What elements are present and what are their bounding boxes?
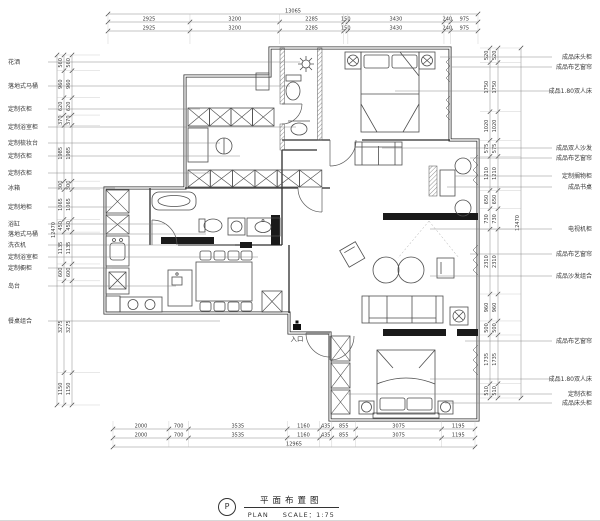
- hatched-walls: [280, 48, 437, 196]
- entry-stamp: [293, 321, 301, 331]
- drawing-title-en-word: PLAN: [248, 511, 269, 519]
- cabinet-cross: [188, 108, 210, 126]
- dim-value: 2925: [143, 16, 156, 22]
- cloakroom: [188, 73, 269, 162]
- dim-value: 1210: [492, 167, 498, 180]
- dim-value: 620: [66, 102, 72, 112]
- cabinet-cross: [300, 170, 322, 187]
- cabinet-cross: [253, 108, 275, 126]
- dim-value: 2285: [305, 16, 318, 22]
- dim-value: 3535: [231, 423, 244, 429]
- fixture-label-right: 成品书桌: [568, 183, 592, 191]
- fixture-label-right: 成品布艺窗帘: [556, 63, 592, 71]
- dim-value: 1750: [492, 81, 498, 94]
- dim-value: 1985: [66, 147, 72, 160]
- dim-value: 975: [460, 16, 470, 22]
- fixture-label-left: 洗衣机: [8, 241, 26, 249]
- dim-value: 500: [492, 323, 498, 333]
- kitchen-island: [168, 270, 192, 306]
- dim-value: 575: [492, 144, 498, 154]
- dim-value: 3275: [58, 320, 64, 333]
- dim-value: 3075: [392, 432, 405, 438]
- dim-value: 3430: [390, 16, 403, 22]
- dim-value: 520: [484, 51, 490, 61]
- dim-value: 1020: [492, 120, 498, 133]
- dim-value: 650: [484, 195, 490, 205]
- dim-value: 2310: [492, 255, 498, 268]
- interior-walls: [150, 140, 450, 313]
- wardrobe-cabinets: [106, 108, 350, 414]
- dim-value: 730: [492, 214, 498, 224]
- dim-value: 520: [492, 51, 498, 61]
- dim-total: 13065: [285, 8, 301, 14]
- fixture-label-right: 成品1.80双人床: [549, 375, 592, 383]
- dim-value: 1135: [58, 242, 64, 255]
- dim-value: 435: [321, 432, 331, 438]
- fixture-label-right: 成品双人沙发: [556, 144, 592, 152]
- dim-value: 600: [58, 268, 64, 278]
- fixture-label-right: 成品布艺窗帘: [556, 154, 592, 162]
- living-room: [340, 155, 478, 375]
- dim-value: 700: [174, 423, 184, 429]
- drawing-symbol: P: [218, 498, 236, 516]
- dim-value: 150: [341, 16, 351, 22]
- cabinet-cross: [331, 336, 350, 361]
- fixture-label-left: 冰箱: [8, 184, 20, 192]
- dim-value: 300: [58, 181, 64, 191]
- dim-value: 1210: [484, 167, 490, 180]
- fixture-label-left: 定制衣柜: [8, 169, 32, 177]
- dim-value: 370: [66, 115, 72, 125]
- dining-set: [196, 251, 252, 311]
- furniture: [106, 52, 478, 418]
- master-bedroom: [345, 52, 450, 132]
- dim-value: 960: [484, 303, 490, 313]
- fixture-annotations: 花洒落地式马桶定制衣柜定制浴室柜定制梳妆台定制衣柜定制衣柜冰箱定制地柜浴缸落地式…: [8, 53, 592, 407]
- dim-value: 730: [484, 214, 490, 224]
- fixture-label-right: 成品布艺窗帘: [556, 250, 592, 258]
- dim-value: 3535: [231, 432, 244, 438]
- fixture-label-right: 成品床头柜: [562, 53, 592, 61]
- dim-value: 450: [58, 221, 64, 231]
- dim-value: 1160: [297, 432, 310, 438]
- drawing-title-cn: 平面布置图: [244, 494, 339, 508]
- dim-value: 560: [58, 58, 64, 68]
- dim-value: 975: [460, 25, 470, 31]
- cabinet-cross: [331, 390, 350, 414]
- dim-value: 2925: [143, 25, 156, 31]
- dim-value: 575: [484, 144, 490, 154]
- fixture-label-left: 定制浴室柜: [8, 253, 38, 261]
- cabinet-cross: [331, 363, 350, 388]
- fixture-label-left: 落地式马桶: [8, 82, 38, 90]
- fixture-label-left: 定制地柜: [8, 203, 32, 211]
- dim-total: 12965: [286, 441, 302, 447]
- fixture-label-right: 成品1.80双人床: [549, 87, 592, 95]
- kitchen: [106, 236, 192, 312]
- dim-value: 435: [321, 423, 331, 429]
- dim-value: 960: [66, 79, 72, 89]
- dim-value: 1195: [452, 423, 465, 429]
- dim-value: 1735: [484, 353, 490, 366]
- cabinet-cross: [210, 170, 232, 187]
- fixture-label-left: 定制橱柜: [8, 264, 32, 272]
- dim-value: 1750: [484, 81, 490, 94]
- door-swings: [152, 104, 356, 360]
- dim-total: 12470: [515, 215, 521, 231]
- dim-value: 650: [492, 195, 498, 205]
- bed: [373, 350, 439, 418]
- fixture-label-left: 落地式马桶: [8, 230, 38, 238]
- fixture-label-right: 定制搁物柜: [562, 172, 592, 180]
- dim-value: 2285: [305, 25, 318, 31]
- hall-loveseat: [355, 142, 402, 165]
- fixture-label-right: 成品床头柜: [562, 399, 592, 407]
- dim-value: 2310: [484, 255, 490, 268]
- dim-value: 500: [484, 323, 490, 333]
- fixture-label-right: 成品布艺窗帘: [556, 337, 592, 345]
- dim-value: 1065: [66, 198, 72, 211]
- fixture-label-right: 成品沙发组合: [556, 272, 592, 280]
- floor-plan-drawing: 2925320022851503430240975292532002285150…: [0, 0, 600, 521]
- fixture-label-left: 花洒: [8, 58, 20, 66]
- dim-value: 1020: [484, 120, 490, 133]
- top-bathroom: [286, 56, 314, 135]
- dim-value: 1150: [66, 382, 72, 395]
- cabinet-cross: [106, 190, 129, 213]
- cabinet-cross: [262, 291, 282, 312]
- sofa: [362, 296, 443, 323]
- dim-value: 2000: [135, 432, 148, 438]
- fixture-label-left: 浴缸: [8, 220, 20, 228]
- fixture-label-left: 餐桌组合: [8, 317, 32, 325]
- dim-value: 3275: [66, 320, 72, 333]
- dim-value: 560: [66, 58, 72, 68]
- dim-value: 600: [66, 268, 72, 278]
- dim-total: 12470: [51, 222, 57, 238]
- dim-value: 2000: [135, 423, 148, 429]
- dim-value: 150: [341, 25, 351, 31]
- dim-value: 960: [58, 79, 64, 89]
- dim-value: 1065: [58, 198, 64, 211]
- dim-value: 3200: [228, 16, 241, 22]
- dim-value: 3075: [392, 423, 405, 429]
- floor-plan-page: 2925320022851503430240975292532002285150…: [0, 0, 600, 521]
- cabinet-cross: [231, 108, 253, 126]
- dim-value: 960: [492, 303, 498, 313]
- master-bed: [361, 52, 419, 132]
- title-block: P 平面布置图 PLANSCALE：1:75: [218, 494, 339, 519]
- cabinet-cross: [210, 108, 232, 126]
- cabinet-cross: [188, 170, 210, 187]
- fixture-label-left: 岛台: [8, 282, 20, 290]
- dim-value: 1735: [492, 353, 498, 366]
- fixture-label-left: 定制衣柜: [8, 105, 32, 113]
- dim-value: 1195: [452, 432, 465, 438]
- fixture-label-right: 定制衣柜: [568, 390, 592, 398]
- dim-value: 370: [58, 115, 64, 125]
- dim-value: 855: [339, 432, 349, 438]
- dim-value: 3200: [228, 25, 241, 31]
- drawing-scale: SCALE：1:75: [283, 511, 335, 519]
- dim-value: 450: [66, 221, 72, 231]
- fixture-label-left: 定制浴室柜: [8, 123, 38, 131]
- dim-value: 700: [174, 432, 184, 438]
- dim-value: 620: [58, 102, 64, 112]
- cabinet-cross: [277, 170, 299, 187]
- dim-value: 1150: [58, 382, 64, 395]
- second-bedroom: [359, 350, 453, 418]
- cabinet-cross: [233, 170, 255, 187]
- cabinet-cross: [255, 170, 277, 187]
- dim-value: 1135: [66, 242, 72, 255]
- fixture-label-left: 定制梳妆台: [8, 139, 38, 147]
- drawing-title-en: PLANSCALE：1:75: [248, 509, 335, 519]
- fixture-label-left: 定制衣柜: [8, 152, 32, 160]
- dim-value: 1160: [297, 423, 310, 429]
- dim-value: 300: [66, 181, 72, 191]
- cabinet-cross: [106, 215, 129, 234]
- fixture-label-right: 电视机柜: [568, 225, 592, 233]
- dim-value: 3430: [390, 25, 403, 31]
- dim-value: 855: [339, 423, 349, 429]
- dim-value: 1985: [58, 147, 64, 160]
- entry-label: 入口: [291, 335, 304, 343]
